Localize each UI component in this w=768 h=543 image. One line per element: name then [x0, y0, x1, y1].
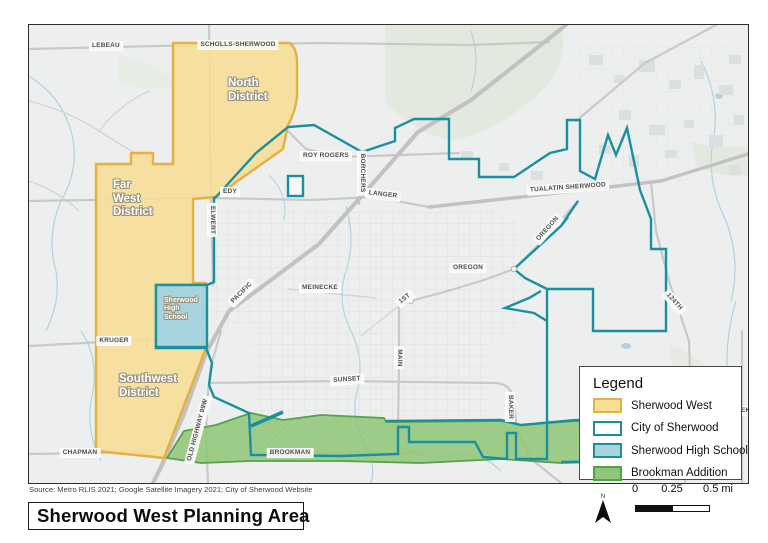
road-label-main: MAIN: [394, 346, 404, 369]
scale-half: 0.5 mi: [703, 483, 733, 495]
sherwood-west-map-page: LEBEAU SCHOLLS-SHERWOOD ROY ROGERS EDY E…: [0, 0, 768, 543]
road-label-brookman: BROOKMAN: [267, 448, 314, 458]
district-label-north: North District: [228, 77, 268, 104]
legend-item-sherwood-high-school: Sherwood High School: [593, 443, 741, 458]
legend: Legend Sherwood West City of Sherwood Sh…: [579, 366, 742, 480]
sherwood-west-swatch: [593, 398, 622, 413]
district-label-far-west: Far West District: [113, 179, 153, 220]
map-canvas: LEBEAU SCHOLLS-SHERWOOD ROY ROGERS EDY E…: [28, 24, 749, 484]
legend-item-brookman-addition: Brookman Addition: [593, 466, 741, 481]
legend-item-label: Sherwood West: [631, 400, 712, 412]
scale-zero: 0: [632, 483, 638, 495]
scale-bar-track: [635, 505, 710, 512]
sherwood-high-school-swatch: [593, 443, 622, 458]
scale-bar-filled-segment: [636, 506, 673, 511]
scale-bar: 0 0.25 0.5 mi: [600, 483, 760, 528]
map-title-box: Sherwood West Planning Area: [28, 502, 304, 530]
scale-quarter: 0.25: [661, 483, 682, 495]
district-label-high-school: Sherwood High School: [164, 297, 198, 322]
road-label-kruger: KRUGER: [96, 336, 131, 346]
district-label-southwest: Southwest District: [119, 373, 177, 400]
legend-item-label: Brookman Addition: [631, 467, 728, 479]
road-label-baker: BAKER: [505, 392, 515, 422]
road-label-elwert: ELWERT: [207, 203, 217, 237]
road-label-oregon: OREGON: [450, 263, 486, 273]
legend-item-city-of-sherwood: City of Sherwood: [593, 421, 741, 436]
road-label-roy-rogers: ROY ROGERS: [300, 151, 352, 161]
road-label-lebeau: LEBEAU: [89, 41, 123, 51]
road-label-meinecke: MEINECKE: [299, 283, 341, 293]
map-title: Sherwood West Planning Area: [37, 505, 310, 527]
road-label-edy: EDY: [220, 187, 240, 197]
legend-item-sherwood-west: Sherwood West: [593, 398, 741, 413]
legend-title: Legend: [593, 375, 741, 392]
legend-item-label: City of Sherwood: [631, 422, 719, 434]
brookman-addition-swatch: [593, 466, 622, 481]
road-label-scholls-sherwood: SCHOLLS-SHERWOOD: [197, 40, 278, 50]
legend-item-label: Sherwood High School: [631, 445, 748, 457]
city-of-sherwood-swatch: [593, 421, 622, 436]
road-label-chapman: CHAPMAN: [60, 448, 101, 458]
source-credit: Source: Metro RLIS 2021; Google Satellit…: [29, 485, 313, 494]
